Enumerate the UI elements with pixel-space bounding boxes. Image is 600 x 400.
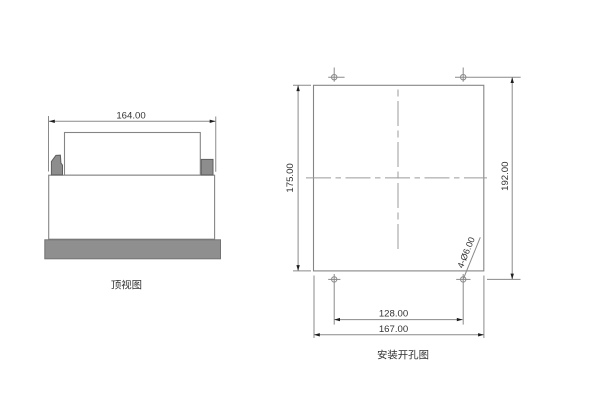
svg-text:167.00: 167.00 bbox=[379, 324, 408, 335]
svg-text:安装开孔图: 安装开孔图 bbox=[377, 349, 429, 362]
svg-text:192.00: 192.00 bbox=[500, 162, 511, 191]
svg-text:164.00: 164.00 bbox=[116, 111, 145, 122]
svg-text:顶视图: 顶视图 bbox=[111, 279, 142, 292]
svg-text:128.00: 128.00 bbox=[379, 309, 408, 320]
svg-text:175.00: 175.00 bbox=[285, 163, 296, 192]
